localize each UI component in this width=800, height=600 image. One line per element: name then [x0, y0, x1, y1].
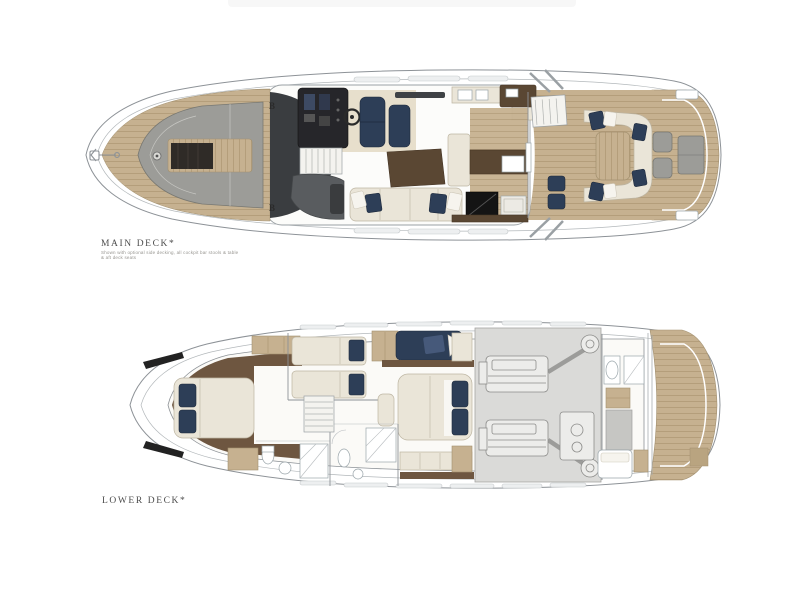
master-wardrobe: [452, 446, 472, 472]
sofa-pillow: [365, 193, 382, 213]
cleat-label-top: B: [269, 101, 275, 111]
lower-deck-plan: [130, 321, 720, 488]
salon-door: [526, 143, 531, 172]
guest-pillow: [349, 340, 364, 361]
salon-cabinet: [448, 134, 470, 186]
guest-pillow: [349, 374, 364, 395]
dining-table: [387, 149, 445, 187]
companion-seat: [389, 105, 410, 147]
cockpit-table: [596, 132, 630, 180]
master-wardrobe: [452, 333, 472, 361]
salon-sofa: [350, 188, 463, 221]
bar-stool: [548, 176, 565, 191]
main-deck-note-line2: & aft deck seats: [101, 255, 136, 260]
crew-sink: [606, 361, 618, 379]
master-bench: [378, 394, 394, 426]
yacht-deck-plans-page: B B: [0, 0, 800, 600]
cleat-label-bottom: B: [269, 203, 275, 213]
main-swim-platform: [652, 90, 719, 220]
sofa-pillow: [429, 193, 447, 214]
cockpit-pillow: [632, 123, 648, 141]
crew-seat: [634, 450, 648, 472]
sink: [353, 469, 363, 479]
master-pillow: [452, 409, 468, 435]
foredeck-hatch: [171, 143, 213, 169]
lower-stairs: [304, 396, 334, 432]
crew-locker: [606, 410, 632, 450]
sink: [279, 462, 291, 474]
sunpad-backrest: [653, 132, 672, 152]
main-deck-plan: B B: [86, 70, 721, 240]
vip-wardrobe: [228, 448, 258, 470]
lower-deck-label: LOWER DECK*: [102, 496, 186, 506]
generator: [560, 412, 594, 460]
sunroof: [395, 92, 445, 98]
sunpad-backrest: [653, 158, 672, 178]
bar-stool: [548, 194, 565, 209]
toilet: [338, 449, 350, 467]
main-deck-label: MAIN DECK*: [101, 239, 175, 249]
deck-plan-drawing: B B: [0, 0, 800, 600]
vip-pillow: [179, 410, 196, 433]
master-pillow: [452, 381, 468, 407]
cockpit-pillow: [632, 169, 648, 187]
engine-room: [475, 328, 601, 482]
lower-swim-platform: [648, 330, 717, 480]
vip-pillow: [179, 384, 196, 407]
foredeck: [90, 89, 270, 221]
